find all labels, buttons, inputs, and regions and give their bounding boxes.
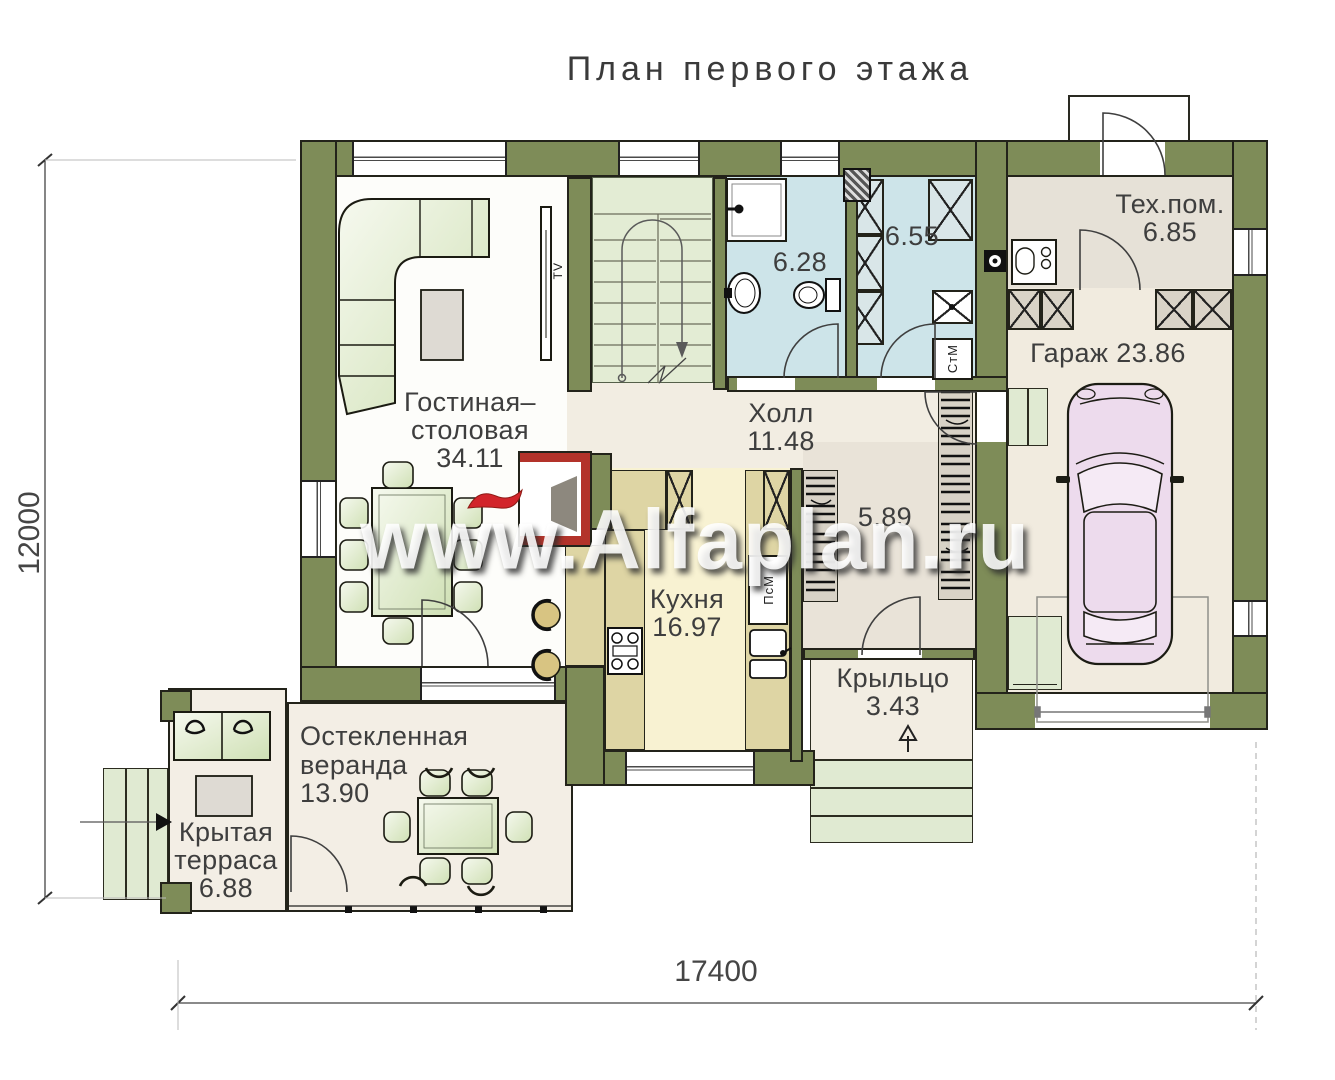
terrace-label: Крытая терраса 6.88 (174, 818, 277, 902)
terrace-step (103, 768, 126, 900)
wall-kitchen-living-connector (565, 666, 605, 786)
watermark: www.Alfaplan.ru (360, 492, 1030, 589)
kitchen-area: 16.97 (650, 613, 724, 641)
living-room-name-2: столовая (404, 416, 536, 444)
window-living-left (302, 480, 335, 558)
garage-entry-step (1028, 388, 1048, 446)
door-gap-bathroom (737, 378, 795, 390)
tech-room-name: Тех.пом. (1115, 190, 1224, 218)
porch-name: Крыльцо (837, 664, 950, 692)
hall-name: Холл (747, 399, 815, 427)
porch-step (810, 760, 973, 788)
door-opening-tech-entrance (1100, 142, 1165, 175)
french-door-living-veranda (420, 668, 556, 700)
shower-cabin (726, 178, 787, 242)
window-living-top (352, 142, 507, 175)
garage-label: Гараж 23.86 (1030, 339, 1186, 367)
door-gap-laundry (877, 378, 935, 390)
garage-entry-step (1008, 388, 1028, 446)
laundry-area-label: 6.55 (885, 222, 939, 250)
terrace-step (148, 768, 168, 900)
garage-shelf (1041, 289, 1074, 330)
garage-shelf (1155, 289, 1193, 330)
window-bath-top (780, 142, 840, 175)
terrace-name-2: терраса (174, 846, 277, 874)
tv-label-text: TV (551, 262, 565, 279)
garage-door-opening (1035, 694, 1210, 728)
wall-left (300, 140, 337, 702)
door-gap-wardrobe-porch (858, 650, 922, 658)
door-gap-hall-garage (977, 392, 1006, 442)
porch-area: 3.43 (837, 692, 950, 720)
garage-area: 23.86 (1116, 338, 1186, 368)
wall-bath-laundry (845, 177, 858, 390)
dimension-bottom-label: 17400 (674, 955, 757, 989)
washing-machine: СтМ (932, 338, 973, 380)
terrace-post (160, 690, 192, 722)
garage-shelf (1193, 289, 1232, 330)
wall-living-stairs (567, 177, 592, 392)
living-room-label: Гостиная– столовая 34.11 (404, 388, 536, 472)
garage-name: Гараж (1030, 338, 1108, 368)
terrace-step (126, 768, 148, 900)
living-room-area: 34.11 (404, 444, 536, 472)
tech-room-label: Тех.пом. 6.85 (1115, 190, 1224, 246)
kitchen-label: Кухня 16.97 (650, 585, 724, 641)
window-garage-right (1234, 600, 1266, 637)
living-room-name-1: Гостиная– (404, 388, 536, 416)
kitchen-name: Кухня (650, 585, 724, 613)
tv-label: TV (551, 262, 565, 284)
washing-machine-label: СтМ (945, 344, 960, 373)
porch-step (810, 816, 973, 843)
hall-label: Холл 11.48 (747, 399, 815, 455)
veranda-area: 13.90 (300, 779, 468, 808)
tech-room-area: 6.85 (1115, 218, 1224, 246)
dimension-left-label: 12000 (13, 491, 47, 574)
veranda-name-1: Остекленная (300, 722, 468, 751)
veranda-name-2: веранда (300, 751, 468, 780)
page-title: План первого этажа (567, 50, 974, 89)
vent-shaft (843, 168, 871, 202)
garage-workbench (1008, 616, 1062, 690)
window-tech-right (1234, 228, 1266, 276)
laundry-sink (932, 290, 973, 324)
garage-shelf (1008, 289, 1041, 330)
terrace-name-1: Крытая (174, 818, 277, 846)
floor-plan-canvas: ПсМ СтМ (0, 0, 1335, 1080)
staircase-floor (592, 177, 713, 383)
bathroom-area-label: 6.28 (773, 248, 827, 276)
veranda-label: Остекленная веранда 13.90 (300, 722, 468, 808)
porch-label: Крыльцо 3.43 (837, 664, 950, 720)
hall-area: 11.48 (747, 427, 815, 455)
terrace-area: 6.88 (174, 874, 277, 902)
window-stairs-top (618, 142, 700, 175)
wall-stairs-bath (713, 177, 727, 390)
porch-step (810, 788, 973, 816)
window-kitchen-bottom (625, 752, 755, 784)
